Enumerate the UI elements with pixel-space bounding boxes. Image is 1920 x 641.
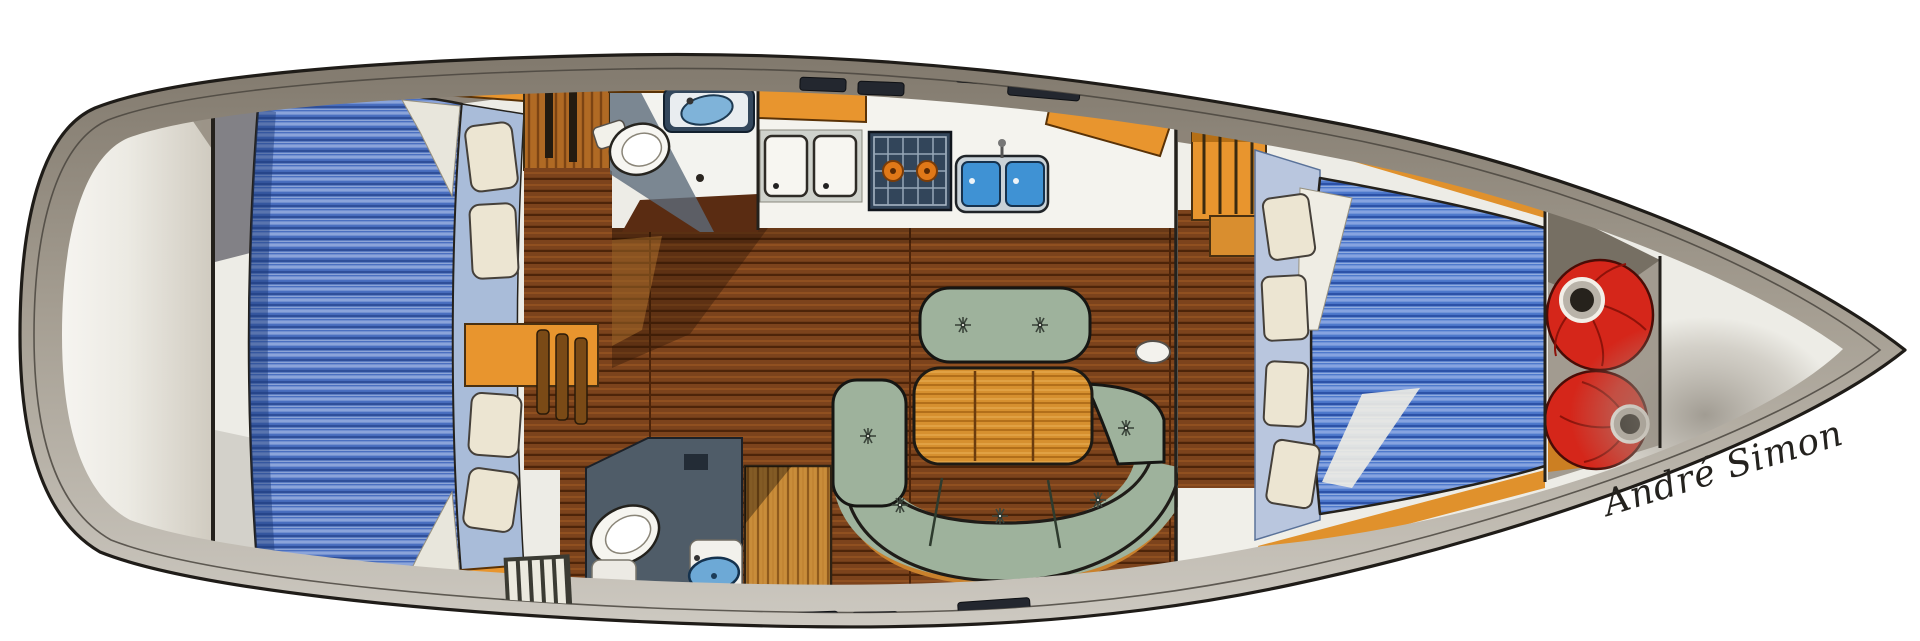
step	[575, 338, 587, 424]
burner-center	[890, 168, 896, 174]
sink-drain	[711, 573, 717, 579]
bag-opening-hole	[1570, 288, 1594, 312]
saloon-table	[914, 368, 1092, 464]
interior	[20, 40, 1910, 640]
pillow	[1262, 193, 1316, 261]
pillow	[469, 203, 519, 279]
aft-berth-mattress	[249, 94, 462, 589]
floorplan-svg: André Simon	[0, 0, 1920, 641]
deck-hatch	[1747, 168, 1796, 202]
stove	[869, 132, 951, 210]
step	[537, 330, 549, 414]
pillow	[468, 392, 522, 457]
sink-drain	[969, 178, 975, 184]
sink-basin	[1006, 162, 1044, 206]
settee-top-bench	[920, 288, 1090, 362]
boat-floorplan-illustration: André Simon	[0, 0, 1920, 641]
burner-center	[924, 168, 930, 174]
lid-latch	[773, 183, 779, 189]
deck-hatch	[800, 77, 846, 92]
faucet	[694, 555, 700, 561]
faucet-head	[998, 139, 1006, 147]
pillow	[464, 121, 519, 192]
pillow	[1263, 361, 1308, 427]
pillow	[462, 467, 520, 533]
step	[556, 334, 568, 420]
aft-transverse-berth	[215, 46, 566, 593]
sink-basin	[962, 162, 1000, 206]
faucet	[687, 98, 694, 105]
mast-step	[1136, 341, 1170, 363]
sink-drain	[1013, 178, 1019, 184]
deck-hatch	[858, 81, 904, 96]
pillow	[1261, 275, 1308, 341]
hatch	[684, 454, 708, 470]
pillow	[1265, 439, 1320, 509]
settee-left-seat	[833, 380, 906, 506]
drain-dot	[696, 174, 704, 182]
fridge-lid	[765, 136, 807, 196]
deck-hatch	[1431, 101, 1489, 132]
lid-latch	[823, 183, 829, 189]
fridge-lid	[814, 136, 856, 196]
